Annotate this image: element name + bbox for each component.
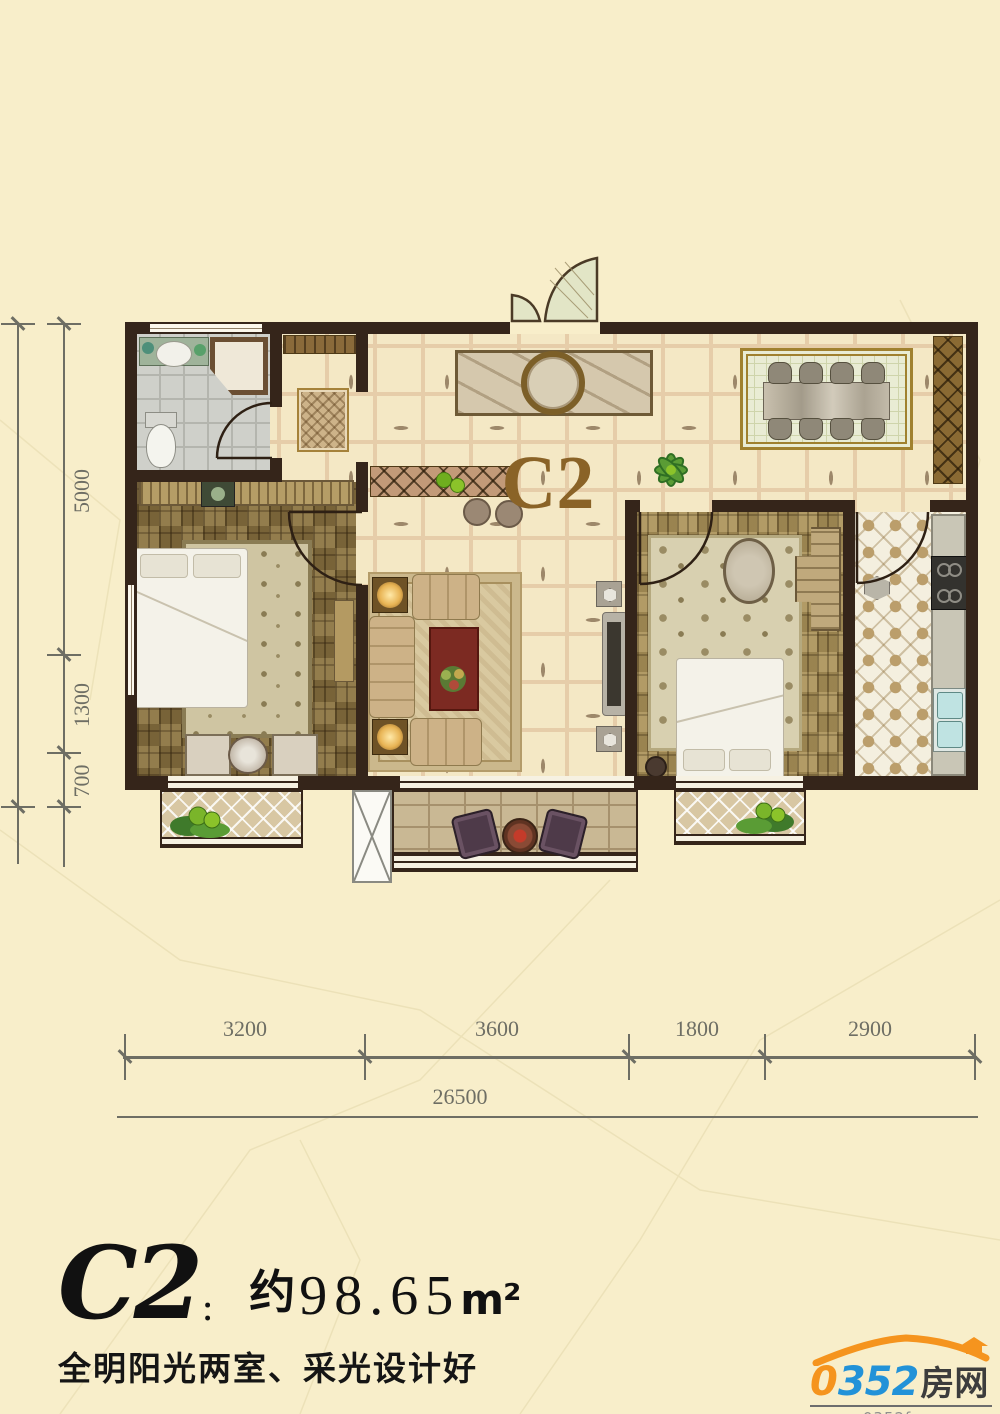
dim-label-2900: 2900 <box>810 1016 930 1042</box>
floorplan-page: C2 <box>0 0 1000 1414</box>
dim-line-vertical <box>63 324 65 867</box>
dim-label-700: 700 <box>69 746 95 816</box>
area-value: 98.65 <box>299 1264 460 1328</box>
dim-label-3600: 3600 <box>437 1016 557 1042</box>
bathroom-door-arc <box>217 403 272 458</box>
dim-label-3200: 3200 <box>185 1016 305 1042</box>
area-unit: m² <box>460 1275 520 1324</box>
unit-code: C2 <box>58 1238 199 1328</box>
title-block: C2 ： 约 98.65 m² 全明阳光两室、采光设计好 <box>58 1238 618 1390</box>
site-logo: 0352房网 www.0352fang.com <box>810 1332 992 1414</box>
title-colon: ： <box>201 1291 227 1328</box>
dim-extension-line <box>17 324 19 864</box>
selling-point: 全明阳光两室、采光设计好 <box>58 1342 618 1390</box>
dim-label-1300: 1300 <box>69 660 95 750</box>
area-approx: 约 <box>249 1256 295 1322</box>
dim-line-bottom <box>123 1056 977 1059</box>
logo-digits: 352 <box>838 1362 919 1402</box>
dim-line-total <box>117 1116 978 1118</box>
dim-label-5000: 5000 <box>69 446 95 536</box>
kitchen-door-arc <box>857 512 928 583</box>
door-swings <box>0 0 1000 900</box>
dim-label-1800: 1800 <box>637 1016 757 1042</box>
logo-zero: 0 <box>810 1362 838 1402</box>
bedroom1-door-arc <box>289 512 362 585</box>
dim-label-26500: 26500 <box>395 1084 525 1110</box>
bedroom2-door-arc <box>640 512 712 584</box>
logo-cn: 房网 <box>920 1367 988 1401</box>
entry-door-leaf-small <box>512 295 540 321</box>
logo-website: www.0352fang.com <box>810 1405 992 1414</box>
